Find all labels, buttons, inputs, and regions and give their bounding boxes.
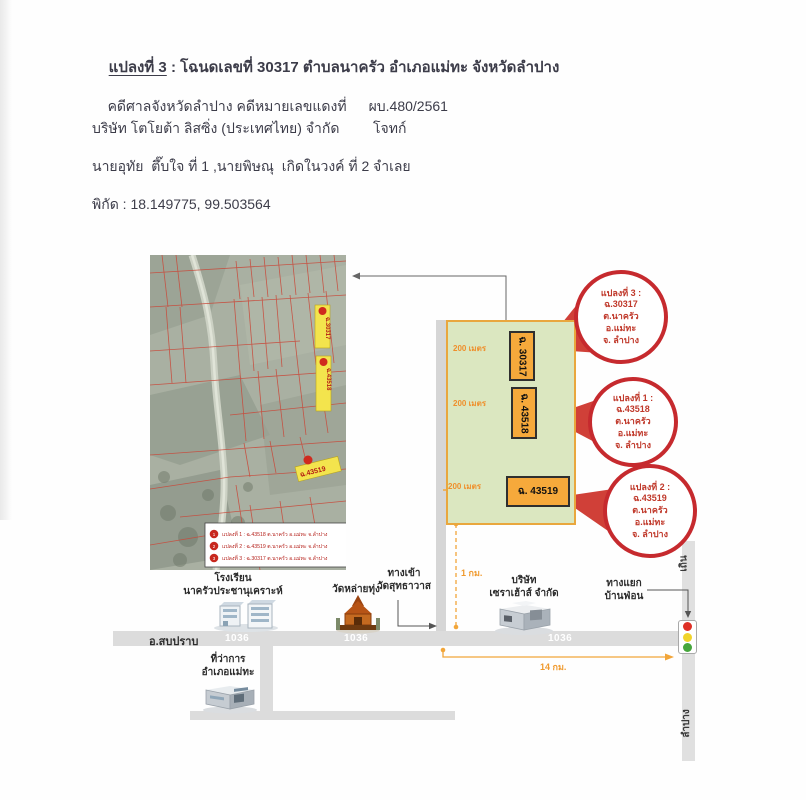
route-number-shield: 1036 <box>225 633 249 644</box>
callout-line: ฉ.30317 <box>604 299 638 311</box>
temple-icon <box>334 594 382 634</box>
plot-box-label: ฉ. 43519 <box>518 484 558 499</box>
plot-box-43518: ฉ. 43518 <box>511 387 537 439</box>
legend-bullet: 1 <box>213 532 216 537</box>
main-road-1036 <box>113 631 694 646</box>
plot-box-43519: ฉ. 43519 <box>506 476 570 507</box>
district-office-label: ที่ว่าการ อำเภอแม่ทะ <box>183 654 273 679</box>
school-label-line1: โรงเรียน <box>158 573 308 586</box>
defendant-role: จำเลย <box>373 156 411 178</box>
plot-box-label: ฉ. 30317 <box>515 336 530 376</box>
legend-row-text: แปลงที่ 1 : ฉ.43518 ต.นาครัว อ.แม่ทะ จ.ล… <box>222 531 328 538</box>
junction-line2: บ้านฟ่อน <box>584 591 664 604</box>
callout-line: จ. ลำปาง <box>603 335 639 347</box>
scan-edge-artifact <box>0 0 12 520</box>
scanned-legal-map-document: แปลงที่ 3 : โฉนดเลขที่ 30317 ตำบลนาครัว … <box>0 0 806 800</box>
callout-line: อ.แม่ทะ <box>635 517 665 529</box>
callout-line: ต.นาครัว <box>632 505 667 517</box>
wat-entrance-label: ทางเข้า วัดสุทธาวาส <box>365 568 443 593</box>
callout-line: ต.นาครัว <box>615 416 650 428</box>
company-building-icon <box>492 597 556 635</box>
road-destination-down: ลำปาง <box>679 709 694 738</box>
district-office-line2: อำเภอแม่ทะ <box>183 667 273 680</box>
measure-200m-label: 200 เมตร <box>448 480 481 493</box>
junction-label: ทางแยก บ้านฟ่อน <box>584 578 664 603</box>
traffic-light-yellow <box>683 633 692 642</box>
callout-line: ฉ.43518 <box>616 404 650 416</box>
road-destination-sopprap: อ.สบปราบ <box>149 632 198 650</box>
school-label-line2: นาครัวประชานุเคราะห์ <box>158 586 308 599</box>
school-building-icon <box>210 598 282 632</box>
callout-line: จ. ลำปาง <box>632 529 668 541</box>
map-link-arrowhead <box>352 273 360 280</box>
callout-line: แปลงที่ 3 : <box>601 288 641 300</box>
traffic-light-red <box>683 622 692 631</box>
map-marker-label: ฉ.43519 <box>299 466 326 479</box>
callout-line: ฉ.43519 <box>633 493 667 505</box>
callout-line: แปลงที่ 1 : <box>613 393 653 405</box>
junction-line1: ทางแยก <box>584 578 664 591</box>
callout-line: อ.แม่ทะ <box>606 323 636 335</box>
plot-number-title: แปลงที่ 3 <box>109 59 167 76</box>
deed-title-rest: : โฉนดเลขที่ 30317 ตำบลนาครัว อำเภอแม่ทะ… <box>167 59 560 76</box>
measure-200m-label: 200 เมตร <box>453 342 486 355</box>
plot-box-30317: ฉ. 30317 <box>509 331 535 381</box>
distance-arrowhead <box>665 654 674 661</box>
wat-entrance-line2: วัดสุทธาวาส <box>365 581 443 594</box>
map-legend: 1 แปลงที่ 1 : ฉ.43518 ต.นาครัว อ.แม่ทะ จ… <box>205 523 346 567</box>
traffic-light-icon <box>678 620 697 654</box>
callout-plot-2: แปลงที่ 2 : ฉ.43519 ต.นาครัว อ.แม่ทะ จ. … <box>603 464 697 558</box>
plaintiff-name: บริษัท โตโยต้า ลิสซิ่ง (ประเทศไทย) จำกัด <box>92 118 339 140</box>
map-marker-30317: ฉ.30317 <box>315 305 331 348</box>
callout-line: แปลงที่ 2 : <box>630 482 670 494</box>
map-marker-label: ฉ.30317 <box>324 317 331 340</box>
map-marker-43518: ฉ.43518 <box>316 356 332 411</box>
wat-entrance-line1: ทางเข้า <box>365 568 443 581</box>
plot-box-label: ฉ. 43518 <box>517 393 532 433</box>
callout-line: อ.แม่ทะ <box>618 428 648 440</box>
gps-coordinates: พิกัด : 18.149775, 99.503564 <box>92 194 271 216</box>
plaintiff-role: โจทก์ <box>373 118 406 140</box>
traffic-light-green <box>683 643 692 652</box>
case-label: คดีศาลจังหวัดลำปาง คดีหมายเลขแดงที่ <box>108 98 347 114</box>
road-destination-up: เถิน <box>677 555 692 571</box>
map-marker-43519: ฉ.43519 <box>295 456 341 482</box>
map-marker-label: ฉ.43518 <box>325 368 332 391</box>
company-line1: บริษัท <box>478 575 570 588</box>
callout-line: จ. ลำปาง <box>615 440 651 452</box>
measure-200m-label: 200 เมตร <box>453 397 486 410</box>
route-number-shield: 1036 <box>344 633 368 644</box>
district-office-line1: ที่ว่าการ <box>183 654 273 667</box>
defendant-names: นายอุทัย ตึ๊บใจ ที่ 1 ,นายพิษณุ เกิดในวง… <box>92 156 369 178</box>
distance-14km-label: 14 กม. <box>540 660 566 674</box>
callout-line: ต.นาครัว <box>603 311 638 323</box>
callout-plot-1: แปลงที่ 1 : ฉ.43518 ต.นาครัว อ.แม่ทะ จ. … <box>588 377 678 467</box>
aerial-photo-map: ฉ.30317 ฉ.43518 ฉ.43519 1 แปลงที่ 1 : ฉ.… <box>150 255 346 570</box>
district-office-building-icon <box>200 680 260 714</box>
callout-plot-3: แปลงที่ 3 : ฉ.30317 ต.นาครัว อ.แม่ทะ จ. … <box>574 270 668 364</box>
legend-bullet: 3 <box>213 556 216 561</box>
legend-row-text: แปลงที่ 2 : ฉ.43519 ต.นาครัว อ.แม่ทะ จ.ล… <box>222 543 328 550</box>
legend-bullet: 2 <box>213 544 216 549</box>
legend-row-text: แปลงที่ 3 : ฉ.30317 ต.นาครัว อ.แม่ทะ จ.ล… <box>222 555 328 562</box>
case-number: ผบ.480/2561 <box>369 98 448 114</box>
school-label: โรงเรียน นาครัวประชานุเคราะห์ <box>158 573 308 598</box>
